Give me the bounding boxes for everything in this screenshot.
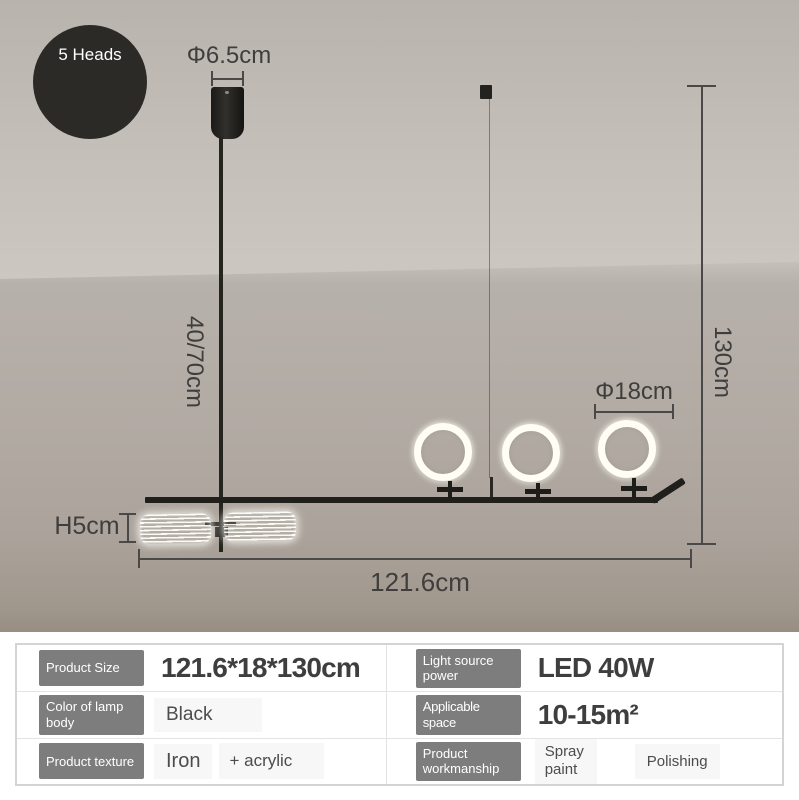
canopy-diameter-line xyxy=(212,78,243,80)
ring-3-bracket xyxy=(621,486,647,491)
spec-value-product-texture-iron: Iron xyxy=(154,744,212,779)
hanging-rod xyxy=(219,137,223,552)
spec-cell-applicable-space: Applicable space 10-15m² xyxy=(386,691,782,737)
spec-cell-lamp-body-color: Color of lamp body Black xyxy=(17,691,386,737)
shade-height-label: H5cm xyxy=(53,512,121,541)
spec-value-workmanship-spray-paint: Spray paint xyxy=(535,738,597,784)
canopy-diameter-label: Φ6.5cm xyxy=(184,42,274,70)
room-photo: 5 Heads Φ6.5cm 40/70cm 13 xyxy=(0,0,799,632)
ceiling-wire-mount xyxy=(480,85,492,99)
total-height-tick-top xyxy=(687,85,716,87)
ring-2-bracket xyxy=(525,489,551,494)
spec-label-light-source-power: Light source power xyxy=(416,649,521,688)
horizontal-bar xyxy=(145,497,658,503)
led-ring-1 xyxy=(414,423,472,481)
suspension-wire xyxy=(489,99,490,478)
spec-label-product-workmanship: Product workmanship xyxy=(416,742,521,781)
bar-angled-end xyxy=(650,477,686,504)
spec-cell-light-source-power: Light source power LED 40W xyxy=(386,645,782,691)
total-height-tick-bottom xyxy=(687,543,716,545)
heads-count-label: 5 Heads xyxy=(33,45,147,65)
ring-diameter-tick-left xyxy=(594,404,596,419)
ring-diameter-label: Φ18cm xyxy=(588,378,680,406)
total-width-tick-left xyxy=(138,549,140,568)
spec-cell-product-size: Product Size 121.6*18*130cm xyxy=(17,645,386,691)
wire-connector xyxy=(490,477,493,498)
spec-label-product-texture: Product texture xyxy=(39,743,144,779)
spec-value-applicable-space: 10-15m² xyxy=(538,699,638,731)
ring-diameter-tick-right xyxy=(672,404,674,419)
acrylic-shade-1 xyxy=(140,513,212,544)
spec-value-workmanship-polishing: Polishing xyxy=(635,744,720,779)
total-width-label: 121.6cm xyxy=(345,567,495,598)
total-width-line xyxy=(139,558,691,560)
ring-1-bracket xyxy=(437,487,463,492)
total-width-tick-right xyxy=(690,549,692,568)
spec-cell-product-texture: Product texture Iron + acrylic xyxy=(17,738,386,784)
led-ring-2 xyxy=(502,424,560,482)
led-ring-3 xyxy=(598,420,656,478)
spec-label-lamp-body-color: Color of lamp body xyxy=(39,695,144,734)
spec-label-product-size: Product Size xyxy=(39,650,144,686)
rod-length-label: 40/70cm xyxy=(180,306,208,418)
spec-value-product-texture-acrylic: + acrylic xyxy=(219,743,324,779)
shade-height-tick-top xyxy=(119,513,136,515)
canopy-diameter-tick-left xyxy=(211,71,213,86)
ceiling-canopy xyxy=(211,87,244,139)
shade-height-tick-bottom xyxy=(119,541,136,543)
product-spec-image: 5 Heads Φ6.5cm 40/70cm 13 xyxy=(0,0,799,800)
ring-diameter-line xyxy=(595,411,673,413)
spec-cell-product-workmanship: Product workmanship Spray paint Polishin… xyxy=(386,738,782,784)
total-height-line xyxy=(701,86,703,544)
total-height-label: 130cm xyxy=(708,317,736,407)
acrylic-shade-2 xyxy=(224,511,296,541)
heads-count-badge: 5 Heads xyxy=(33,25,147,139)
spec-table: Product Size 121.6*18*130cm Light source… xyxy=(15,643,784,786)
spec-value-light-source-power: LED 40W xyxy=(538,652,654,684)
canopy-diameter-tick-right xyxy=(242,71,244,86)
shade-height-line xyxy=(127,514,129,542)
spec-value-lamp-body-color: Black xyxy=(154,698,262,732)
spec-label-applicable-space: Applicable space xyxy=(416,695,521,734)
spec-value-product-size: 121.6*18*130cm xyxy=(161,652,360,684)
